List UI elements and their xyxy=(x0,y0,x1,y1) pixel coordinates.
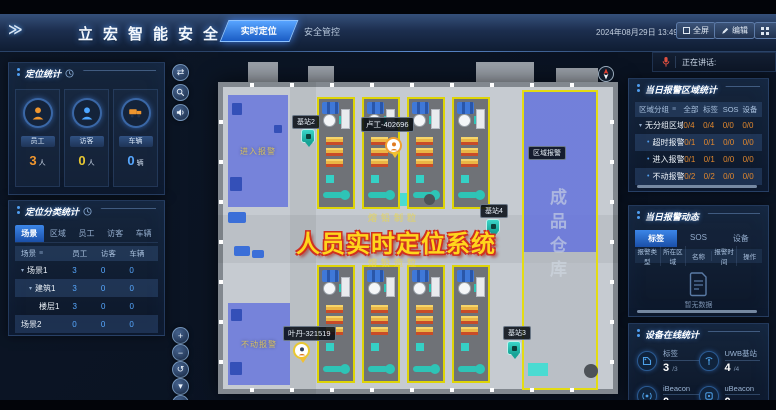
map-zoom-in-button[interactable]: + xyxy=(172,327,189,344)
roof-structure xyxy=(476,62,534,82)
table-row[interactable]: •超时报警 0/1 0/1 0/0 0/0 xyxy=(635,134,762,151)
wall-column xyxy=(450,388,454,392)
location-stats-panel: 定位统计 员工 3人 访客 0人 xyxy=(8,62,165,195)
letterbox-bottom xyxy=(0,400,776,410)
bay-pallet xyxy=(371,159,388,167)
wall-column xyxy=(530,83,534,87)
employee-count: 3人 xyxy=(29,153,45,168)
machine-bay xyxy=(317,265,355,383)
classification-tabs: 场景 区域 员工 访客 车辆 xyxy=(15,225,158,243)
wall-column xyxy=(410,388,414,392)
bay-cabinet xyxy=(386,277,395,297)
wall-column xyxy=(410,83,414,87)
alarm-area-stats-panel: 当日报警区域统计 区域分组≡ 全部 标签 SOS 设备 ▾无分组区域 0/4 0… xyxy=(628,78,769,192)
bay-pallet xyxy=(416,159,433,167)
bay-machine xyxy=(322,102,339,114)
tab-tags[interactable]: 标签 xyxy=(635,230,677,247)
menu-icon: ≡ xyxy=(672,106,676,113)
system-title-overlay: 人员实时定位系统 xyxy=(296,224,496,259)
bay-machine xyxy=(412,270,429,282)
panel-accent xyxy=(637,334,640,337)
wall-column xyxy=(610,280,614,284)
fullscreen-label: 全屏 xyxy=(693,25,709,36)
fullscreen-button[interactable]: 全屏 xyxy=(676,22,716,39)
tab-region[interactable]: 区域 xyxy=(44,225,73,242)
table-row[interactable]: ▾无分组区域 0/4 0/4 0/0 0/0 xyxy=(635,117,762,134)
app-title: 立宏智能安全 xyxy=(78,23,228,44)
station2-pin[interactable] xyxy=(301,129,315,143)
classification-stats-panel: 定位分类统计 场景 区域 员工 访客 车辆 场景≡ 员工 访客 车辆 ▾场景1 … xyxy=(8,200,165,336)
tab-realtime-location-label: 实时定位 xyxy=(225,21,293,42)
app-screen: ≫ 立宏智能安全 实时定位 安全管控 2024年08月29日 13:49:34 … xyxy=(0,0,776,410)
clock-icon xyxy=(65,69,74,78)
visitor-label: 访客 xyxy=(70,136,104,147)
wall-column xyxy=(290,83,294,87)
wall-column xyxy=(219,200,223,204)
device-label: UWB基站 xyxy=(725,348,761,361)
device-count: 3 /3 xyxy=(663,362,699,374)
swap-icon: ⇄ xyxy=(177,67,185,78)
wall-column xyxy=(490,388,494,392)
bay-valve xyxy=(458,188,485,202)
tab-sos[interactable]: SOS xyxy=(677,230,719,247)
header-bar: ≫ 立宏智能安全 实时定位 安全管控 2024年08月29日 13:49:34 … xyxy=(0,14,776,52)
employee-icon xyxy=(23,98,53,128)
alarm-feed-panel: 当日报警动态 标签 SOS 设备 报警类型 所在区域 名称 报警时间 操作 暂无… xyxy=(628,205,769,317)
bay-cabinet xyxy=(431,277,440,297)
device-label: iBeacon xyxy=(663,384,699,395)
table-row[interactable]: ▾建筑1 3 0 0 xyxy=(15,279,158,297)
panel-decor-line xyxy=(725,86,760,93)
bay-pallet xyxy=(416,137,433,145)
wall-column xyxy=(570,388,574,392)
bay-wheel xyxy=(458,114,471,127)
tab-realtime-location[interactable]: 实时定位 xyxy=(220,20,299,42)
wall-column xyxy=(610,360,614,364)
rack xyxy=(232,103,242,115)
table-row[interactable]: •进入报警 0/1 0/1 0/0 0/0 xyxy=(635,151,762,168)
roof-structure xyxy=(248,62,278,82)
device-online-panel: 设备在线统计 标签 3 /3 UWB基站 4 /4 xyxy=(628,323,769,403)
arrow-down-icon: ▾ xyxy=(639,122,642,129)
wall-column xyxy=(610,240,614,244)
table-row[interactable]: •不动报警 0/2 0/2 0/0 0/0 xyxy=(635,168,762,185)
person-icon xyxy=(389,141,399,151)
entry-alarm-zone[interactable]: 进入报警 xyxy=(228,95,288,207)
alarm-feed-table-header: 报警类型 所在区域 名称 报警时间 操作 xyxy=(635,249,762,263)
station4-tag[interactable]: 基站4 xyxy=(480,204,508,218)
panel-decor-line xyxy=(707,331,760,338)
table-row[interactable]: 场景2 0 0 0 xyxy=(15,315,158,333)
bay-pallet xyxy=(416,316,433,324)
machine-bay xyxy=(452,265,490,383)
edit-label: 编辑 xyxy=(732,25,748,36)
bay-cyan-box xyxy=(416,343,424,351)
still-alarm-label: 不动报警 xyxy=(241,339,277,350)
machine-bay xyxy=(407,265,445,383)
horizontal-scrollbar[interactable] xyxy=(637,310,757,313)
map-broadcast-button[interactable] xyxy=(172,104,189,121)
bay-cyan-box xyxy=(461,175,469,183)
bay-valve xyxy=(413,362,440,376)
vehicle-label: 车辆 xyxy=(119,136,153,147)
wall-column xyxy=(219,160,223,164)
alarm-area-title: 当日报警区域统计 xyxy=(645,83,717,96)
bay-pallet xyxy=(326,137,343,145)
station2-tag[interactable]: 基站2 xyxy=(292,115,320,129)
bay-pallet xyxy=(371,327,388,335)
bay-machine xyxy=(367,102,384,114)
wall-column xyxy=(219,280,223,284)
bay-cyan-box xyxy=(461,343,469,351)
logo-chevrons-icon: ≫ xyxy=(8,21,21,38)
roof-structure xyxy=(308,66,334,82)
bay-machine xyxy=(367,270,384,282)
map-swap-button[interactable]: ⇄ xyxy=(172,64,189,81)
bay-pallet xyxy=(461,305,478,313)
forklift xyxy=(252,250,264,258)
bay-cyan-box xyxy=(326,343,334,351)
bay-wheel xyxy=(413,114,426,127)
area-alarm-tag[interactable]: 区域报警 xyxy=(528,146,566,160)
bay-cabinet xyxy=(431,109,440,129)
uwb-station-icon xyxy=(699,351,719,371)
table-row[interactable]: ▾场景1 3 0 0 xyxy=(15,261,158,279)
bullet-icon: • xyxy=(647,173,649,180)
grid-icon xyxy=(761,27,769,35)
reset-icon: ↺ xyxy=(177,364,185,375)
panel-accent xyxy=(17,211,20,214)
search-icon xyxy=(176,88,185,97)
forklift xyxy=(234,246,250,256)
bay-pallet xyxy=(326,159,343,167)
classification-title: 定位分类统计 xyxy=(25,205,79,218)
conveyor xyxy=(528,363,548,376)
rack xyxy=(274,125,282,133)
clock-icon xyxy=(83,207,92,216)
device-online-header: 设备在线统计 xyxy=(629,324,768,344)
tab-visitor[interactable]: 访客 xyxy=(101,225,130,242)
tab-devices[interactable]: 设备 xyxy=(720,230,762,247)
tab-scene[interactable]: 场景 xyxy=(15,225,44,242)
bay-valve xyxy=(368,188,395,202)
bay-pallet xyxy=(326,316,343,324)
wall-column xyxy=(450,83,454,87)
bay-cyan-box xyxy=(371,343,379,351)
bay-cabinet xyxy=(341,109,350,129)
wall-column xyxy=(330,83,334,87)
bay-valve xyxy=(458,362,485,376)
bay-cyan-box xyxy=(416,175,424,183)
divider xyxy=(675,56,676,68)
bay-pallet xyxy=(371,305,388,313)
bay-pallet xyxy=(416,305,433,313)
rack xyxy=(231,309,242,321)
vehicle-icon xyxy=(121,98,151,128)
wall-column xyxy=(219,240,223,244)
forklift xyxy=(228,212,246,223)
equipment-ball xyxy=(584,364,598,378)
bay-cabinet xyxy=(476,277,485,297)
compass-icon[interactable] xyxy=(598,66,614,82)
alarm-feed-title: 当日报警动态 xyxy=(645,210,699,223)
tag-device-icon xyxy=(637,351,657,371)
caret-icon: ▾ xyxy=(178,381,183,392)
machine-bay xyxy=(452,97,490,209)
stat-card-vehicle[interactable]: 车辆 0辆 xyxy=(113,89,158,187)
bay-cabinet xyxy=(476,109,485,129)
bay-pallet xyxy=(326,148,343,156)
bay-wheel xyxy=(368,282,381,295)
panel-accent xyxy=(637,89,640,92)
rack xyxy=(230,362,242,375)
wall-column xyxy=(610,120,614,124)
wall-column xyxy=(219,360,223,364)
bay-pallet xyxy=(461,327,478,335)
device-item-tag[interactable]: 标签 3 /3 xyxy=(637,348,699,374)
bay-wheel xyxy=(458,282,471,295)
map-zoom-out-button[interactable]: − xyxy=(172,344,189,361)
empty-state: 暂无数据 xyxy=(629,271,768,310)
bay-pallet xyxy=(461,148,478,156)
person2-pin[interactable] xyxy=(293,342,310,359)
device-label: uBeacon xyxy=(725,384,761,395)
bay-machine xyxy=(457,270,474,282)
bay-valve xyxy=(323,188,350,202)
tab-employee[interactable]: 员工 xyxy=(72,225,101,242)
wall-column xyxy=(370,388,374,392)
entry-alarm-label: 进入报警 xyxy=(240,146,276,157)
device-count: 4 /4 xyxy=(725,362,761,374)
minus-icon: − xyxy=(178,348,183,358)
layout-button[interactable] xyxy=(754,22,776,39)
wall-column xyxy=(219,320,223,324)
bullet-icon: • xyxy=(647,156,649,163)
bay-pallet xyxy=(371,316,388,324)
tab-vehicle[interactable]: 车辆 xyxy=(129,225,158,242)
wall-column xyxy=(610,320,614,324)
rack xyxy=(230,177,242,191)
machine-bay xyxy=(362,265,400,383)
device-item-uwb[interactable]: UWB基站 4 /4 xyxy=(699,348,761,374)
wall-column xyxy=(330,388,334,392)
bay-pallet xyxy=(461,316,478,324)
roof-structure xyxy=(556,68,598,82)
bay-pallet xyxy=(416,148,433,156)
bay-machine xyxy=(322,270,339,282)
location-stats-header: 定位统计 xyxy=(9,63,164,83)
plus-icon: + xyxy=(178,331,183,341)
arrow-down-icon: ▾ xyxy=(21,267,24,274)
bay-pallet xyxy=(326,305,343,313)
bay-cabinet xyxy=(341,277,350,297)
panel-accent xyxy=(17,73,20,76)
bay-valve xyxy=(323,362,350,376)
wall-column xyxy=(250,388,254,392)
microphone-icon xyxy=(661,56,671,68)
bay-wheel xyxy=(413,282,426,295)
bay-wheel xyxy=(323,114,336,127)
alarm-feed-tabs: 标签 SOS 设备 xyxy=(635,230,762,247)
empty-text: 暂无数据 xyxy=(685,300,713,310)
classification-header: 定位分类统计 xyxy=(9,201,164,221)
panel-decor-line xyxy=(82,70,156,77)
location-stats-title: 定位统计 xyxy=(25,67,61,80)
horizontal-scrollbar[interactable] xyxy=(637,185,757,188)
edit-button[interactable]: 编辑 xyxy=(714,22,755,39)
stat-cards: 员工 3人 访客 0人 车辆 0辆 xyxy=(9,83,164,187)
menu-icon: ≡ xyxy=(39,250,43,257)
wall-column xyxy=(610,200,614,204)
letterbox-top xyxy=(0,0,776,14)
panel-decor-line xyxy=(100,208,156,215)
stat-card-employee[interactable]: 员工 3人 xyxy=(15,89,60,187)
station3-tag[interactable]: 基站3 xyxy=(503,326,531,340)
wall-column xyxy=(490,83,494,87)
visitor-icon xyxy=(72,98,102,128)
person-icon xyxy=(297,346,307,356)
alarm-feed-header: 当日报警动态 xyxy=(629,206,768,226)
bay-pallet xyxy=(416,327,433,335)
visitor-count: 0人 xyxy=(78,153,94,168)
bay-cyan-box xyxy=(326,175,334,183)
wall-column xyxy=(530,388,534,392)
device-online-title: 设备在线统计 xyxy=(645,328,699,341)
pencil-icon xyxy=(721,27,729,35)
machine-bay xyxy=(317,97,355,209)
wall-column xyxy=(610,160,614,164)
alarm-area-header: 当日报警区域统计 xyxy=(629,79,768,99)
equipment-ball xyxy=(424,194,435,205)
area-label-top: 熔铅制粒 xyxy=(368,211,420,224)
bay-wheel xyxy=(323,282,336,295)
map-search-button[interactable] xyxy=(172,84,189,101)
alarm-area-table-header: 区域分组≡ 全部 标签 SOS 设备 xyxy=(635,102,762,117)
warehouse-label: 成品仓库 xyxy=(544,188,569,338)
bay-cyan-box xyxy=(371,175,379,183)
employee-label: 员工 xyxy=(21,136,55,147)
panel-decor-line xyxy=(707,213,760,220)
tab-security-control[interactable]: 安全管控 xyxy=(304,25,340,38)
person2-tag[interactable]: 叶丹-321519 xyxy=(283,326,336,341)
bay-machine xyxy=(457,102,474,114)
wall-column xyxy=(250,83,254,87)
person1-pin[interactable] xyxy=(385,137,402,154)
speaker-icon xyxy=(176,108,185,117)
wall-column xyxy=(219,120,223,124)
map-layers-button[interactable]: ▾ xyxy=(172,378,189,395)
wall-column xyxy=(370,83,374,87)
station3-pin[interactable] xyxy=(507,341,521,355)
document-icon xyxy=(687,271,711,297)
bay-pallet xyxy=(461,137,478,145)
machine-bay xyxy=(407,97,445,209)
still-alarm-zone[interactable]: 不动报警 xyxy=(228,303,290,385)
device-label: 标签 xyxy=(663,348,699,361)
bay-valve xyxy=(368,362,395,376)
stat-card-visitor[interactable]: 访客 0人 xyxy=(64,89,109,187)
fullscreen-icon xyxy=(683,27,690,34)
panel-accent xyxy=(637,216,640,219)
speaking-status-bar: 正在讲话: xyxy=(652,52,776,72)
bullet-icon: • xyxy=(647,139,649,146)
wall-column xyxy=(570,83,574,87)
person1-tag[interactable]: 卢工-402696 xyxy=(361,117,414,132)
vehicle-count: 0辆 xyxy=(127,153,143,168)
classification-table-header: 场景≡ 员工 访客 车辆 xyxy=(15,246,158,261)
map-reset-button[interactable]: ↺ xyxy=(172,361,189,378)
table-row[interactable]: 楼层1 3 0 0 xyxy=(15,297,158,315)
arrow-down-icon: ▾ xyxy=(29,285,32,292)
wall-column xyxy=(290,388,294,392)
bay-pallet xyxy=(461,159,478,167)
speaking-label: 正在讲话: xyxy=(682,57,716,68)
bay-machine xyxy=(412,102,429,114)
